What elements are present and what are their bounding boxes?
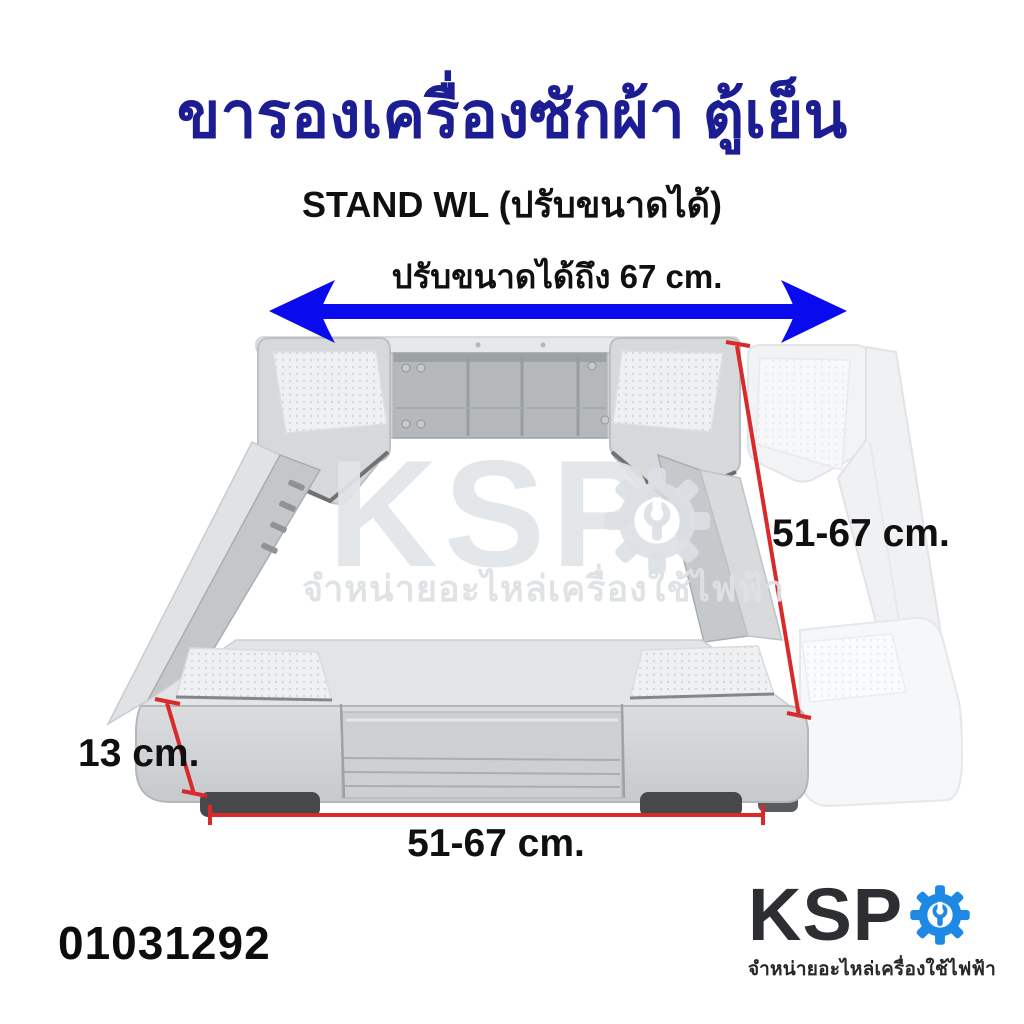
ksp-logo-text: KSP bbox=[748, 878, 903, 952]
product-infographic: ขารองเครื่องซักผ้า ตู้เย็น STAND WL (ปรั… bbox=[0, 0, 1024, 1024]
height-dimension-label: 13 cm. bbox=[78, 732, 199, 776]
gear-wrench-icon bbox=[907, 882, 973, 948]
ksp-logo-tagline: จำหน่ายอะไหล่เครื่องใช้ไฟฟ้า bbox=[748, 954, 978, 984]
product-code: 01031292 bbox=[58, 916, 271, 970]
width-arrow bbox=[269, 280, 847, 343]
watermark-tagline-text: จำหน่ายอะไหล่เครื่องใช้ไฟฟ้า bbox=[302, 560, 785, 617]
right-dimension-label: 51-67 cm. bbox=[772, 512, 950, 556]
ksp-logo: KSP bbox=[748, 878, 978, 984]
bottom-dimension-label: 51-67 cm. bbox=[346, 822, 646, 866]
